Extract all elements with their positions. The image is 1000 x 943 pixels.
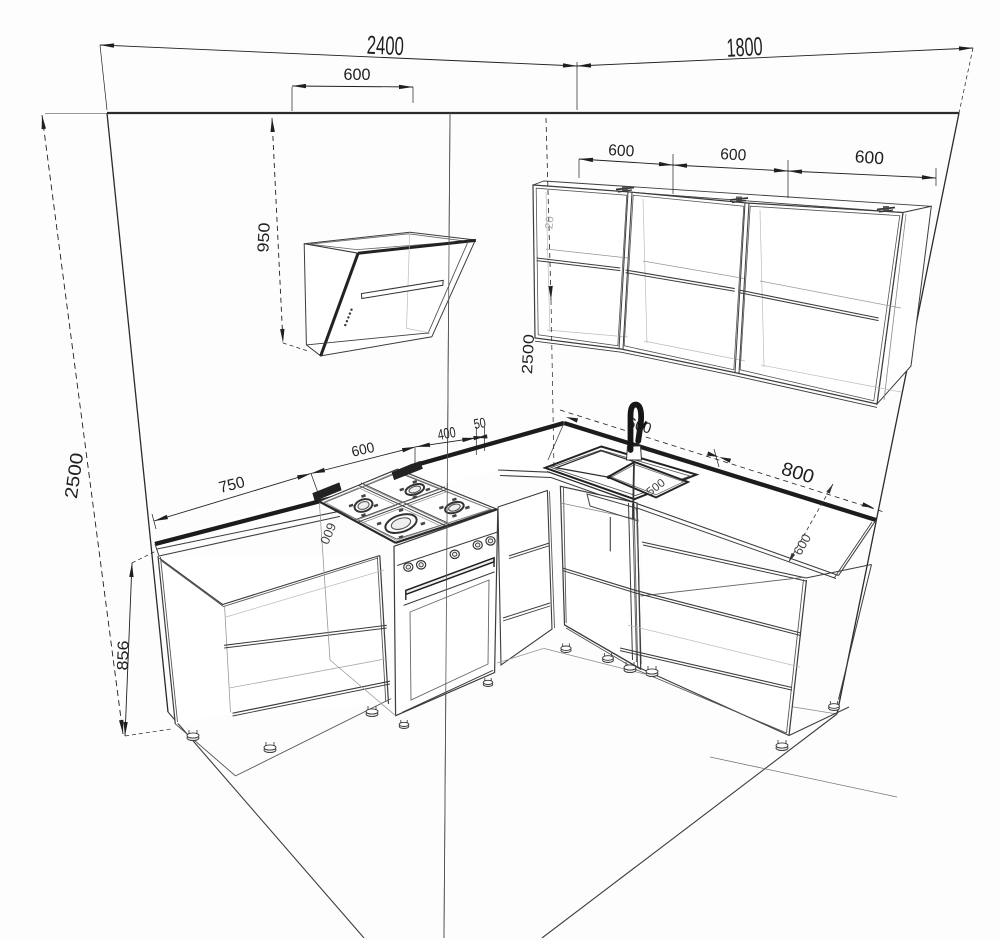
svg-text:2400: 2400: [366, 30, 404, 61]
svg-text:950: 950: [255, 222, 274, 253]
svg-text:600: 600: [608, 142, 635, 160]
svg-text:600: 600: [854, 146, 885, 168]
svg-text:600: 600: [720, 146, 747, 164]
svg-text:856: 856: [114, 640, 132, 671]
svg-text:1800: 1800: [726, 31, 764, 63]
svg-text:20: 20: [543, 216, 556, 230]
svg-text:2500: 2500: [519, 334, 538, 375]
svg-text:400: 400: [436, 424, 457, 444]
svg-text:600: 600: [344, 66, 371, 84]
